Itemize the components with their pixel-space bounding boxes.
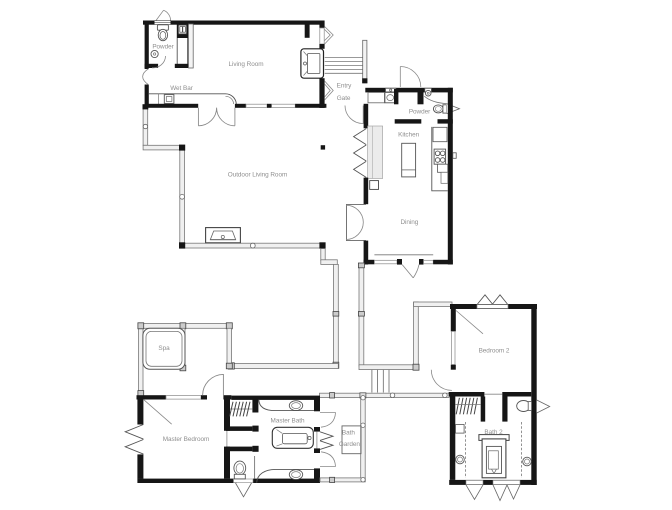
svg-text:Bath: Bath bbox=[342, 430, 355, 437]
svg-text:Kitchen: Kitchen bbox=[398, 132, 419, 139]
svg-text:Entry: Entry bbox=[337, 82, 353, 89]
svg-text:Dining: Dining bbox=[400, 219, 418, 226]
svg-text:Powder: Powder bbox=[152, 44, 174, 51]
svg-text:Spa: Spa bbox=[158, 345, 170, 352]
svg-text:Outdoor Living Room: Outdoor Living Room bbox=[228, 171, 287, 178]
svg-text:Master Bath: Master Bath bbox=[271, 417, 305, 424]
svg-text:Bedroom 2: Bedroom 2 bbox=[479, 348, 510, 355]
svg-text:Master Bedroom: Master Bedroom bbox=[163, 436, 210, 443]
svg-text:Wet Bar: Wet Bar bbox=[170, 85, 194, 92]
svg-text:Gate: Gate bbox=[337, 95, 351, 102]
svg-text:Living Room: Living Room bbox=[229, 61, 264, 68]
svg-text:Garden: Garden bbox=[339, 441, 361, 448]
svg-text:Powder: Powder bbox=[409, 109, 431, 116]
